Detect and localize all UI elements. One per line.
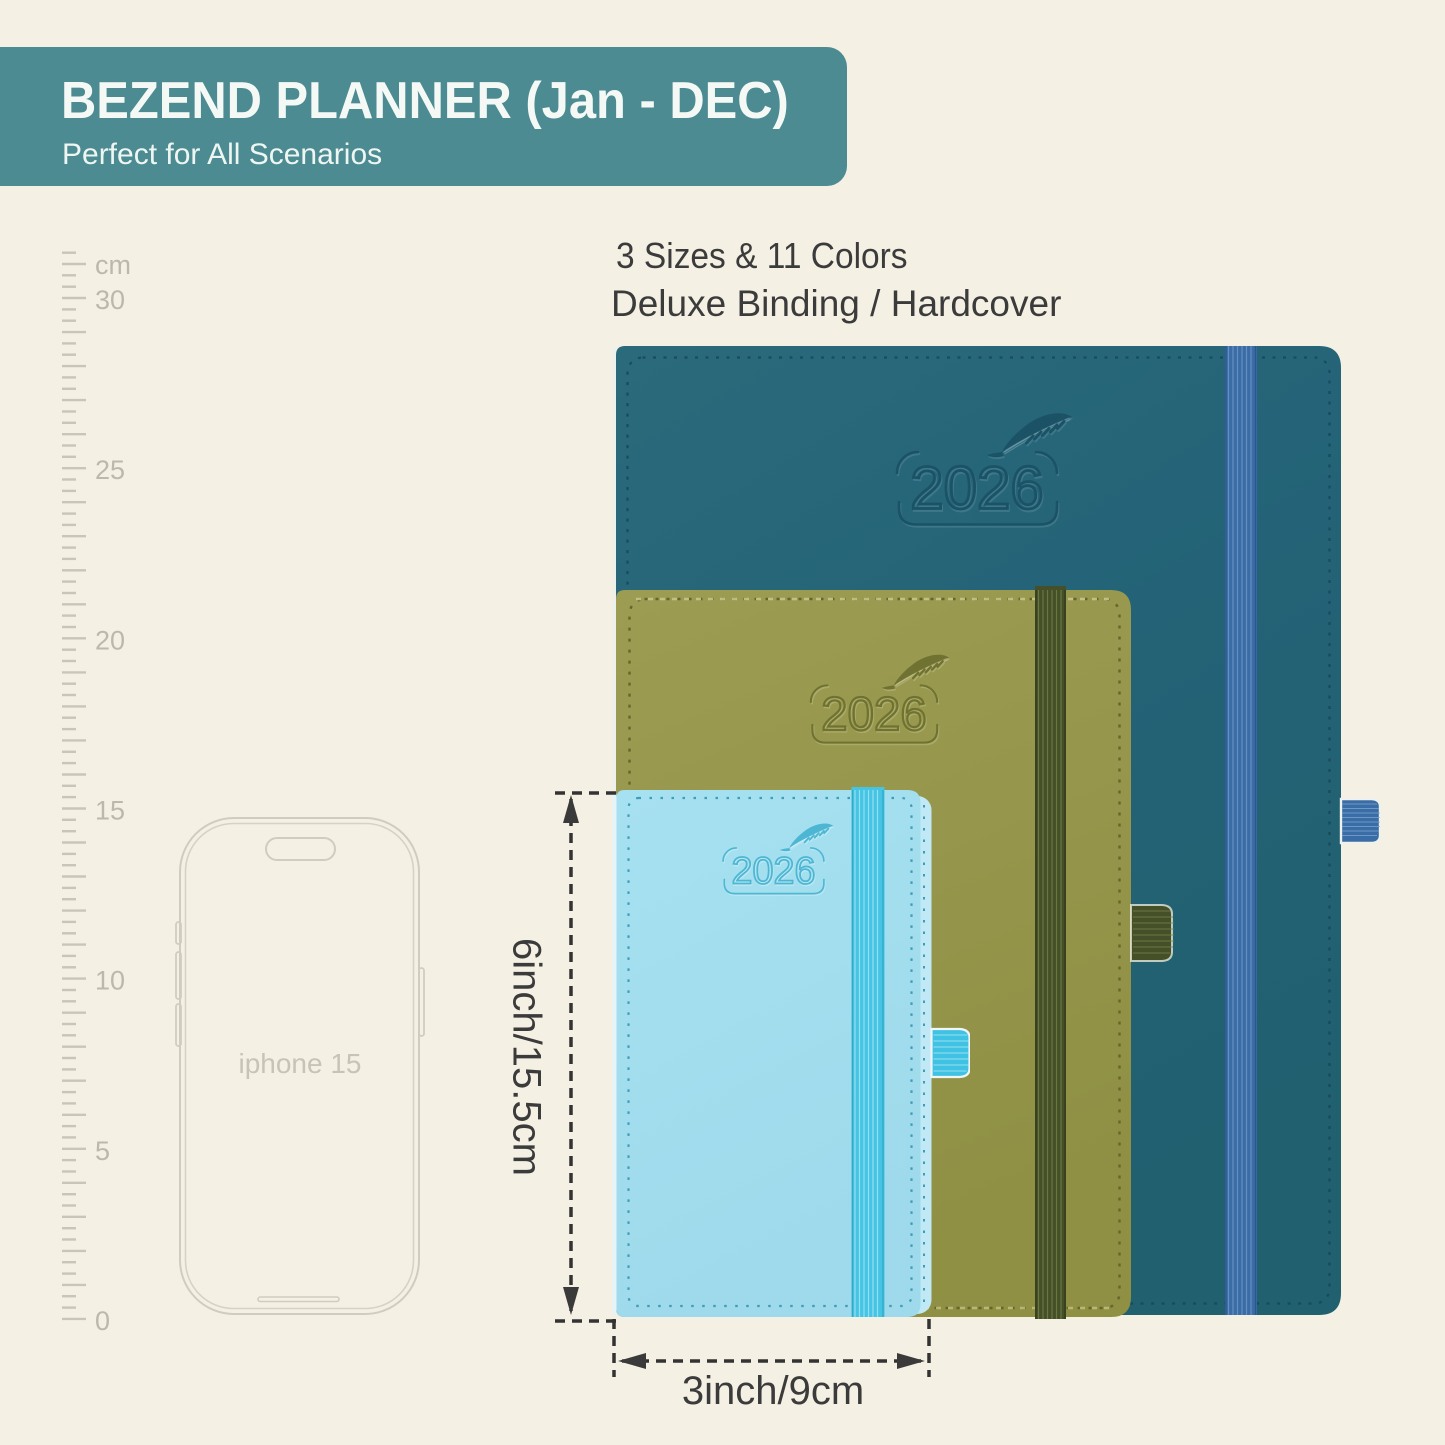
svg-text:5: 5 xyxy=(95,1136,110,1166)
svg-text:25: 25 xyxy=(95,455,125,485)
svg-text:6inch/15.5cm: 6inch/15.5cm xyxy=(505,938,549,1176)
svg-text:cm: cm xyxy=(95,250,131,280)
svg-text:iphone 15: iphone 15 xyxy=(238,1048,361,1079)
svg-text:3inch/9cm: 3inch/9cm xyxy=(682,1369,864,1413)
svg-text:15: 15 xyxy=(95,796,125,826)
svg-text:10: 10 xyxy=(95,966,125,996)
svg-text:0: 0 xyxy=(95,1306,110,1336)
svg-text:20: 20 xyxy=(95,625,125,655)
svg-text:30: 30 xyxy=(95,285,125,315)
